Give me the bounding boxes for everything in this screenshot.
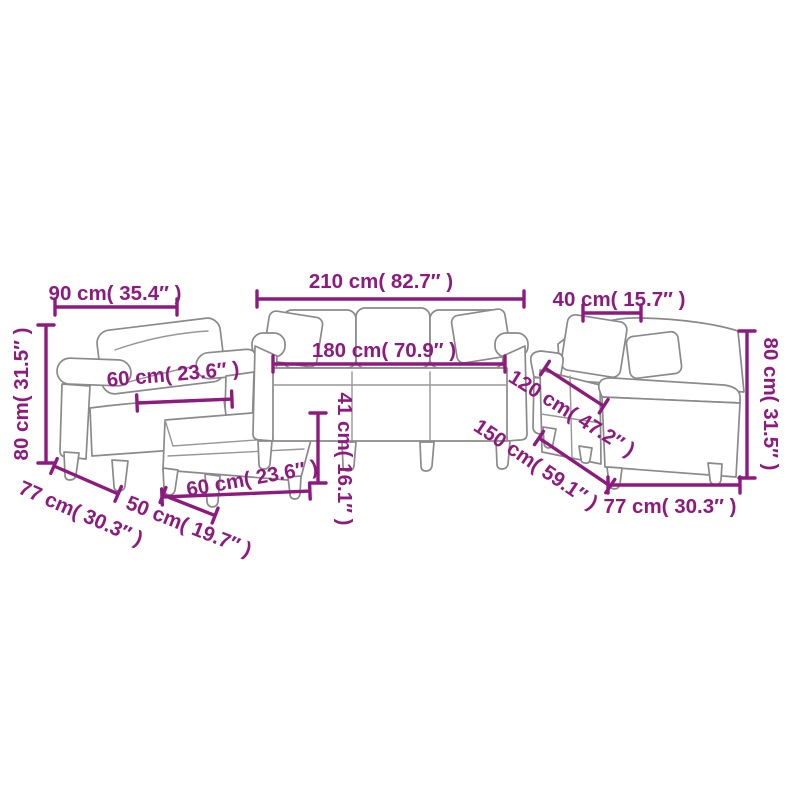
dim-label-sofa-inner-width: 180 cm( 70.9″ ) [312, 339, 456, 362]
dim-label-cushion-width: 40 cm( 15.7″ ) [553, 288, 686, 311]
diagram-canvas: 90 cm( 35.4″ ) 80 cm( 31.5″ ) 60 cm( 23.… [0, 0, 800, 800]
dim-label-loveseat-height: 80 cm( 31.5″ ) [759, 338, 782, 471]
loveseat-pillow [626, 331, 683, 379]
loveseat-leg [579, 446, 592, 463]
dim-line-loveseat-height [739, 331, 755, 478]
dim-label-footstool-depth: 50 cm( 19.7″ ) [123, 491, 255, 561]
loveseat-pillow [560, 314, 628, 379]
dim-label-armchair-width: 90 cm( 35.4″ ) [49, 282, 182, 305]
dim-label-sofa-width: 210 cm( 82.7″ ) [309, 270, 453, 293]
loveseat-leg [708, 463, 722, 485]
dim-line-armchair-height [38, 325, 54, 463]
sofa-leg [420, 442, 434, 471]
dim-label-armchair-height: 80 cm( 31.5″ ) [10, 328, 33, 461]
dimension-diagram: 90 cm( 35.4″ ) 80 cm( 31.5″ ) 60 cm( 23.… [0, 0, 800, 800]
dim-loveseat-height: 80 cm( 31.5″ ) [739, 331, 782, 478]
dim-armchair-width: 90 cm( 35.4″ ) [49, 282, 182, 315]
dim-label-loveseat-depth: 77 cm( 30.3″ ) [604, 495, 737, 518]
dim-line-sofa-width [257, 291, 524, 307]
dim-armchair-height: 80 cm( 31.5″ ) [10, 325, 54, 463]
armchair-left-arm-front [60, 384, 90, 459]
dim-sofa-width: 210 cm( 82.7″ ) [257, 270, 524, 307]
dim-label-seat-height: 41 cm( 16.1″ ) [333, 393, 356, 526]
